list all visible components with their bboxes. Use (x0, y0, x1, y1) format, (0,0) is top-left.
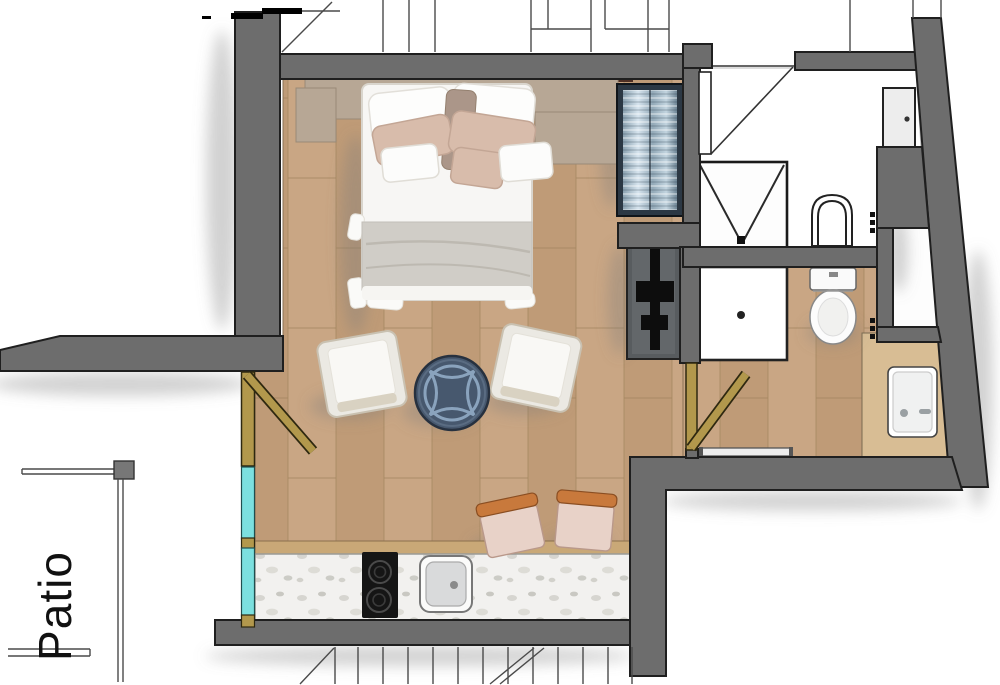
stool-right (553, 489, 618, 551)
toilet (810, 268, 856, 344)
faucet-lever (919, 409, 931, 414)
bathroom-shelf (699, 447, 793, 457)
vanity-sink (888, 367, 937, 437)
left-horizontal-wall (0, 336, 283, 371)
shower-tray (699, 267, 787, 360)
round-table (415, 356, 489, 430)
entry-door-jamb-wall (683, 44, 712, 68)
bedroom-left-wall (235, 12, 280, 336)
wall-above-niche (877, 147, 929, 228)
floor-plan-drawing (0, 0, 1000, 685)
bed-blanket (362, 222, 532, 290)
armchair-right (489, 323, 583, 414)
entry-cabinet (883, 88, 915, 147)
cooktop (362, 552, 398, 618)
stool-left (475, 492, 547, 559)
tv (641, 315, 668, 330)
shower-drain (737, 311, 745, 319)
kitchen-bottom-wall (215, 620, 630, 645)
top-wall (280, 54, 683, 79)
exterior-linework (202, 0, 941, 52)
kitchen-counter (255, 541, 630, 620)
tv-cabinet (627, 232, 680, 359)
tv-nook-wall (618, 223, 700, 248)
wardrobe (617, 84, 683, 216)
entry-top-wall (795, 52, 919, 70)
bathroom-bottom-wall (630, 457, 962, 676)
bedroom-right-wall (683, 68, 700, 225)
nightstand-left (296, 88, 336, 142)
kitchen-sink (420, 556, 472, 612)
patio-label: Patio (25, 519, 85, 685)
bed-pillows (368, 83, 554, 190)
entry-shower-enclosure (697, 162, 787, 248)
armchair-left (316, 330, 408, 419)
entry-door-leaf (699, 72, 711, 154)
floor-plan: Patio (0, 0, 1000, 685)
left-window (242, 467, 255, 627)
faucet (900, 409, 908, 417)
bed-foot-sheet (362, 286, 532, 300)
patio-post (114, 461, 134, 479)
wall-below-niche (877, 327, 941, 342)
entry-bathroom-divider (683, 247, 877, 267)
tv (636, 281, 674, 302)
cabinet-handle (904, 116, 909, 121)
